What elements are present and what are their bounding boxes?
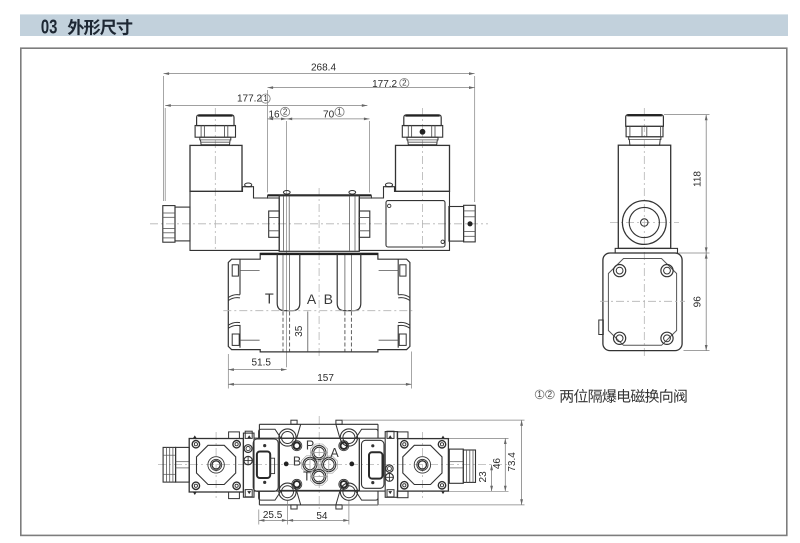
svg-text:T: T xyxy=(303,469,311,483)
svg-text:B: B xyxy=(293,454,301,468)
svg-text:2: 2 xyxy=(402,79,407,88)
svg-text:16: 16 xyxy=(268,109,280,120)
svg-text:51.5: 51.5 xyxy=(251,357,271,368)
svg-text:54: 54 xyxy=(316,511,328,522)
svg-text:177.2: 177.2 xyxy=(372,79,397,90)
svg-text:2: 2 xyxy=(548,390,553,399)
svg-text:177.2: 177.2 xyxy=(237,94,262,105)
svg-text:03: 03 xyxy=(41,17,58,39)
svg-text:B: B xyxy=(324,291,333,307)
svg-text:268.4: 268.4 xyxy=(311,62,336,73)
svg-text:157: 157 xyxy=(317,373,334,384)
svg-text:23: 23 xyxy=(478,471,489,483)
svg-text:70: 70 xyxy=(323,109,335,120)
svg-text:1: 1 xyxy=(337,108,342,117)
svg-text:A: A xyxy=(307,291,317,307)
svg-text:118: 118 xyxy=(692,171,703,187)
svg-text:96: 96 xyxy=(692,296,703,308)
svg-text:P: P xyxy=(306,438,314,452)
svg-text:35: 35 xyxy=(294,325,305,337)
svg-text:T: T xyxy=(265,292,274,308)
svg-text:A: A xyxy=(330,446,339,460)
svg-text:46: 46 xyxy=(492,458,503,470)
svg-text:25.5: 25.5 xyxy=(263,510,283,521)
svg-text:73.4: 73.4 xyxy=(507,452,518,472)
svg-text:2: 2 xyxy=(283,108,288,117)
svg-text:1: 1 xyxy=(537,390,542,399)
